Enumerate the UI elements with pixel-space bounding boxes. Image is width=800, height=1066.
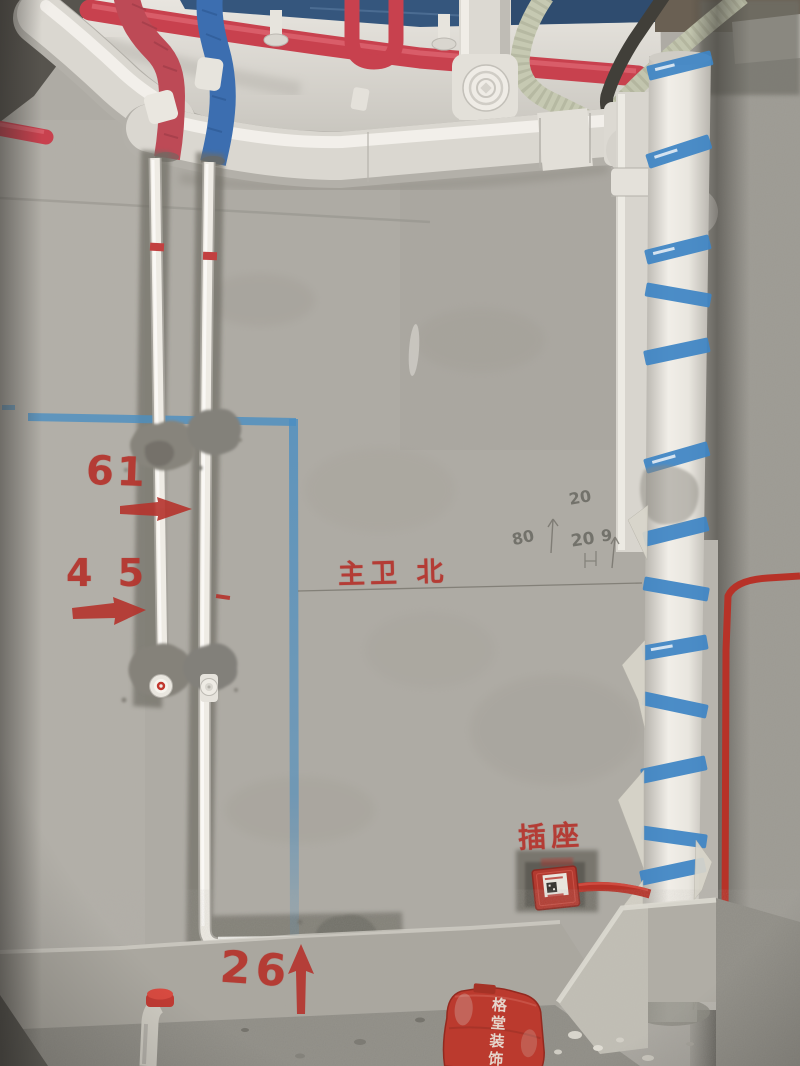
vignette <box>0 0 800 1066</box>
photo-canvas <box>0 0 800 1066</box>
construction-photo: 61 4 5 主卫 北 插座 26 20 80 20 9 格堂装饰 <box>0 0 800 1066</box>
